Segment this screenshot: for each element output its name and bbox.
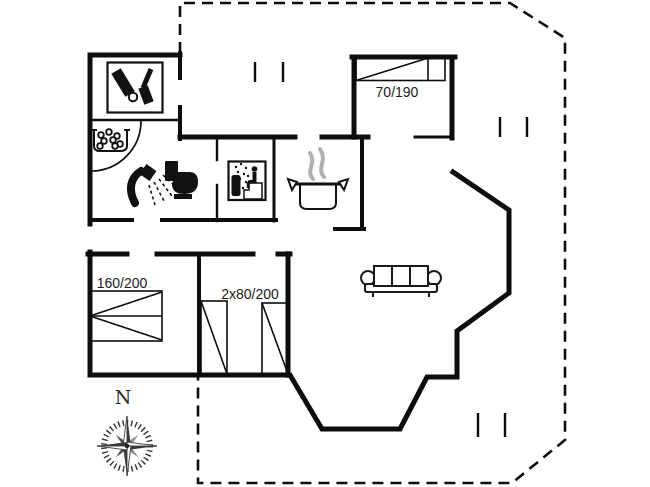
bed-twin-label: 2x80/200 bbox=[221, 286, 279, 302]
cooking-pot-icon bbox=[288, 149, 348, 209]
shower-head bbox=[143, 169, 153, 176]
toilet-base bbox=[174, 194, 192, 199]
whirlpool-icon bbox=[91, 129, 130, 151]
bed-double-label: 160/200 bbox=[97, 275, 148, 291]
sauna-icon bbox=[229, 162, 266, 201]
compass-north-label: N bbox=[115, 386, 132, 408]
floor-plan: 70/190 160/200 2x80/200 bbox=[0, 0, 650, 487]
boots-icon-frame bbox=[108, 63, 163, 113]
sofa-cushions bbox=[374, 266, 428, 286]
bed-single-label: 70/190 bbox=[376, 84, 419, 100]
boot-left-heel bbox=[129, 93, 137, 101]
bed-single bbox=[356, 58, 445, 81]
boots-icon bbox=[108, 63, 163, 113]
bed-twin-a-duvet bbox=[201, 301, 227, 374]
pot-handle-right bbox=[339, 179, 348, 190]
floor-plan-canvas: 70/190 160/200 2x80/200 bbox=[0, 0, 650, 487]
shower-arm bbox=[131, 171, 141, 203]
window-mark-south bbox=[478, 413, 505, 437]
toilet-bowl bbox=[172, 172, 198, 194]
compass-center bbox=[125, 444, 129, 448]
sofa-arm-right bbox=[427, 271, 441, 285]
wall-left-lower-and-bay bbox=[90, 172, 509, 429]
window-mark-east bbox=[500, 117, 527, 137]
whirlpool-bubbles bbox=[97, 129, 123, 149]
bed-single-duvet bbox=[356, 58, 428, 81]
compass-rose-icon bbox=[97, 416, 157, 476]
bed-twin bbox=[201, 301, 288, 374]
sofa-icon bbox=[361, 266, 441, 297]
window-mark-top bbox=[255, 62, 283, 82]
pot-body bbox=[300, 184, 336, 209]
bed-double bbox=[90, 291, 162, 341]
bed-double-duvet-a bbox=[90, 292, 162, 316]
pot-steam bbox=[310, 149, 324, 179]
boot-right-foot bbox=[143, 87, 149, 103]
bed-double-duvet-b bbox=[90, 316, 162, 340]
sofa-arm-left bbox=[361, 271, 375, 285]
pot-handle-left bbox=[288, 179, 297, 190]
bed-twin-b-duvet bbox=[262, 303, 288, 374]
